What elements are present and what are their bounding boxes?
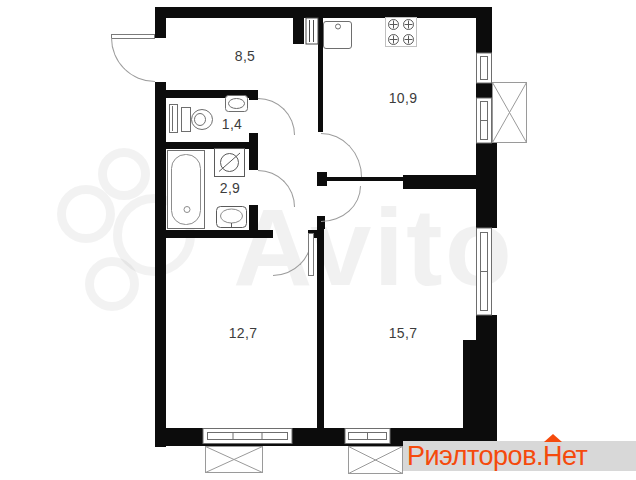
brand-text: Риэлторов.Нет bbox=[407, 441, 588, 471]
washbasin-icon bbox=[226, 96, 248, 112]
kitchen-sink-icon bbox=[324, 22, 352, 49]
fixtures-layer bbox=[0, 0, 636, 480]
bathtub-icon bbox=[168, 151, 205, 229]
stove-icon bbox=[386, 18, 417, 47]
brand-text-prefix: Риэлторов. bbox=[407, 441, 543, 471]
room-label-room-small: 12,7 bbox=[229, 325, 257, 341]
brand-text-suffix: ет bbox=[562, 441, 588, 471]
brand-band: Риэлторов.Нет bbox=[403, 441, 636, 471]
room-label-bathroom: 2,9 bbox=[220, 180, 240, 196]
floorplan-image: Avito bbox=[0, 0, 636, 480]
room-label-room-large: 15,7 bbox=[389, 325, 417, 341]
room-label-kitchen: 10,9 bbox=[389, 90, 417, 106]
washing-machine-icon bbox=[215, 149, 245, 177]
vent-shaft-icon bbox=[306, 18, 318, 44]
room-label-hallway: 8,5 bbox=[235, 48, 255, 64]
toilet-icon bbox=[182, 108, 213, 132]
house-roof-icon: Н bbox=[543, 441, 562, 472]
window-kitchen-lower bbox=[477, 98, 492, 143]
bathroom-washbasin-icon bbox=[217, 207, 247, 228]
radiator-icon bbox=[170, 105, 178, 133]
balcony-hatch-right bbox=[493, 83, 527, 143]
window-room-small bbox=[203, 429, 292, 444]
window-room-large-right bbox=[477, 228, 492, 315]
balcony-hatch-bottom-right bbox=[349, 447, 403, 474]
window-room-large bbox=[345, 429, 390, 444]
window-kitchen-upper bbox=[477, 53, 492, 83]
balcony-hatch-bottom-left bbox=[206, 447, 263, 473]
room-label-wc: 1,4 bbox=[222, 116, 242, 132]
